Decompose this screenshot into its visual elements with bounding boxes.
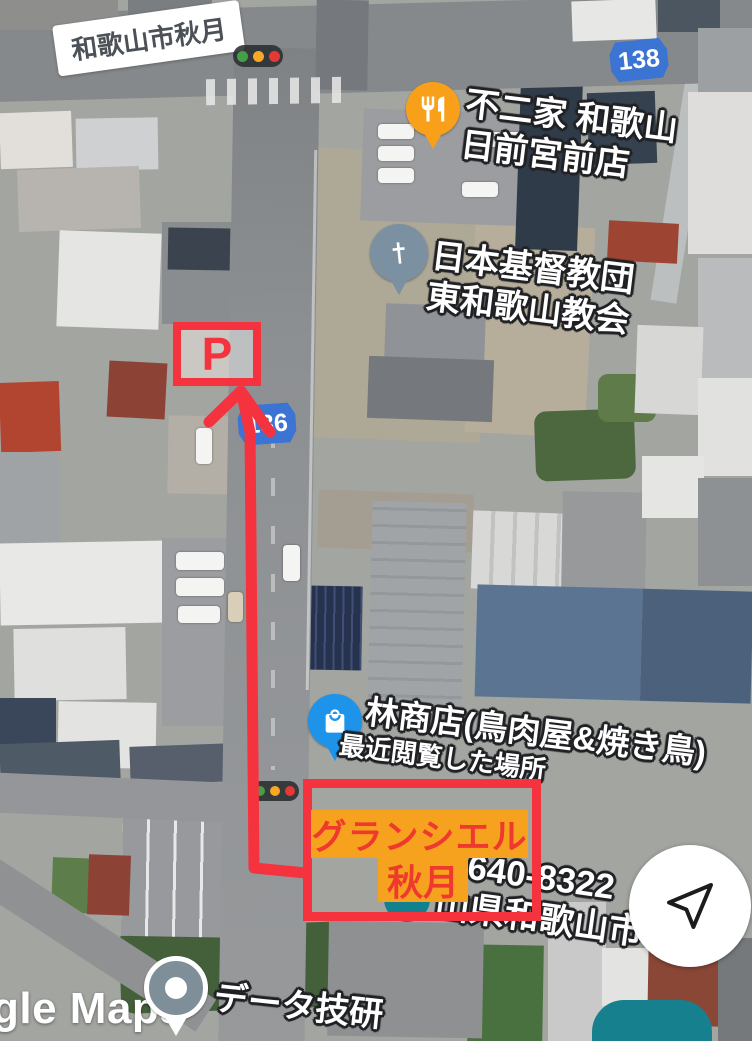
- map-building: [698, 378, 752, 476]
- map-building: [56, 230, 161, 330]
- traffic-red-dot: [269, 51, 280, 62]
- map-building: [87, 854, 131, 915]
- map-building: [602, 948, 650, 1006]
- map-building: [607, 220, 679, 264]
- map-building: [475, 584, 752, 703]
- map-building: [634, 325, 703, 415]
- generic-place-icon: [144, 956, 208, 1020]
- map-building: [698, 258, 752, 380]
- map-building: [698, 28, 752, 92]
- navigation-arrow-icon: [662, 878, 718, 934]
- map-car: [462, 182, 498, 197]
- church-poi-pin[interactable]: [370, 224, 428, 295]
- map-building: [561, 491, 647, 590]
- parking-letter: P: [202, 331, 233, 377]
- traffic-light-icon: [251, 781, 299, 801]
- restaurant-icon: [406, 82, 460, 136]
- map-car: [378, 168, 414, 183]
- destination-name-line1: グランシエル: [311, 810, 528, 858]
- traffic-green-dot: [255, 786, 265, 796]
- destination-name-line2: 秋月: [378, 858, 468, 902]
- map-car: [228, 592, 243, 622]
- route-shield-136: 136: [237, 402, 298, 446]
- traffic-red-dot: [285, 786, 295, 796]
- map-car: [178, 606, 220, 623]
- map-car: [283, 545, 300, 581]
- parking-marker-box: P: [173, 322, 261, 386]
- traffic-amber-dot: [270, 786, 280, 796]
- route-shield-138: 138: [608, 37, 670, 83]
- crosswalk: [206, 77, 346, 105]
- traffic-amber-dot: [253, 51, 264, 62]
- traffic-light-icon: [233, 45, 283, 67]
- map-building: [688, 92, 752, 254]
- satellite-map-view[interactable]: gle Maps 和歌山市秋月 138 136 不二家 和歌山 日前宮前店 日本…: [0, 0, 752, 1041]
- traffic-green-dot: [237, 51, 248, 62]
- office-poi-pin[interactable]: [144, 956, 208, 1036]
- lane-dashes: [271, 430, 275, 770]
- map-building: [0, 381, 61, 453]
- map-building: [642, 456, 704, 518]
- map-car: [176, 552, 224, 570]
- map-building: [367, 356, 494, 422]
- church-cross-icon: [370, 224, 428, 282]
- map-building: [367, 501, 466, 713]
- map-building: [0, 541, 169, 626]
- map-building: [698, 478, 752, 586]
- map-building: [13, 627, 126, 701]
- directions-button[interactable]: [592, 1000, 712, 1041]
- map-solar-roof: [305, 586, 362, 671]
- restaurant-poi-pin[interactable]: [406, 82, 460, 149]
- map-car: [196, 428, 212, 464]
- my-location-button[interactable]: [629, 845, 751, 967]
- map-building: [0, 452, 60, 548]
- map-building: [76, 117, 159, 170]
- map-building: [471, 510, 566, 591]
- map-car: [176, 578, 224, 596]
- map-building: [168, 227, 231, 270]
- map-building: [571, 0, 656, 41]
- map-building: [0, 111, 73, 169]
- map-building: [17, 166, 141, 232]
- map-building: [107, 361, 168, 420]
